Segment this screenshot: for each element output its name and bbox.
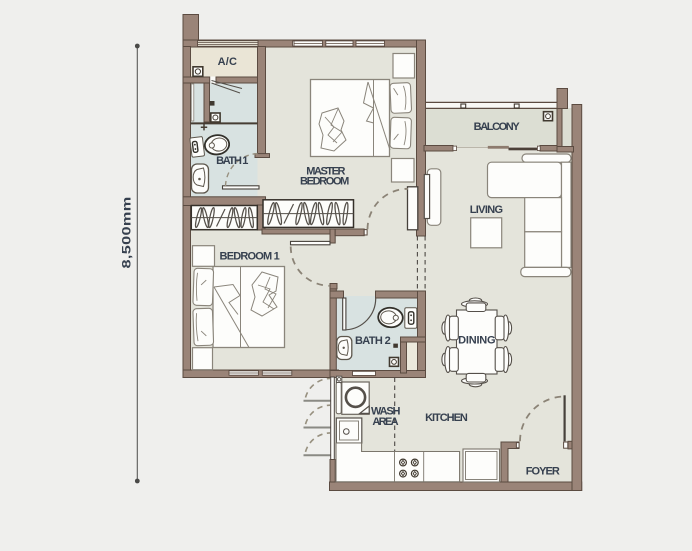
svg-text:LIVING: LIVING — [470, 204, 504, 216]
svg-text:FOYER: FOYER — [526, 466, 560, 478]
svg-text:BATH 2: BATH 2 — [355, 335, 391, 347]
svg-text:DINING: DINING — [458, 335, 496, 347]
svg-text:BATH 1: BATH 1 — [216, 155, 249, 167]
svg-text:BALCONY: BALCONY — [474, 121, 521, 133]
svg-text:A/C: A/C — [218, 56, 238, 68]
svg-text:BEDROOM 1: BEDROOM 1 — [220, 250, 280, 262]
svg-text:8,500mm: 8,500mm — [120, 197, 134, 269]
svg-text:KITCHEN: KITCHEN — [425, 412, 468, 424]
svg-text:AREA: AREA — [372, 416, 398, 428]
svg-text:BEDROOM: BEDROOM — [300, 175, 350, 187]
